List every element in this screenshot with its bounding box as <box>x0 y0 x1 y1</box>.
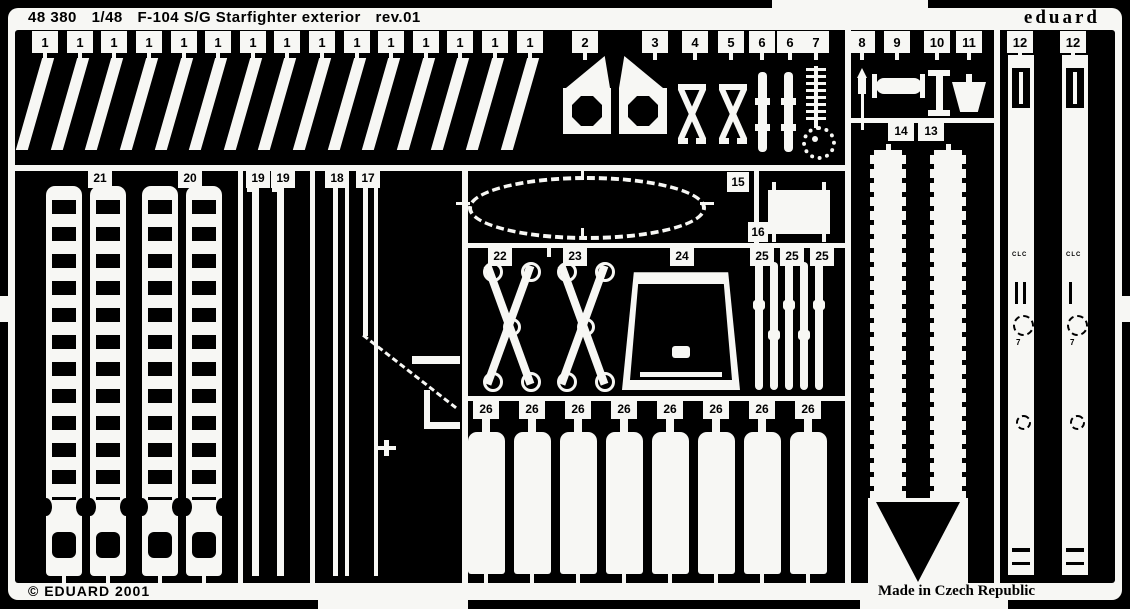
part-number-tab: 1 <box>447 31 473 53</box>
column-waist-notch <box>180 498 192 516</box>
x-brace-foot <box>719 138 729 144</box>
slat-part <box>560 432 597 574</box>
narrow-strip-part <box>277 190 284 576</box>
column-waist-notch <box>136 498 148 516</box>
oval-tick <box>581 228 584 238</box>
column-slot <box>96 532 120 558</box>
fitting-9-part <box>872 74 877 98</box>
header-title: 48 380 1/48 F-104 S/G Starfighter exteri… <box>28 9 431 29</box>
strip-12-tick <box>1066 548 1084 552</box>
strip-12-circle <box>1013 315 1034 336</box>
plate-stem <box>772 182 776 190</box>
hinge-strip-part <box>800 262 808 390</box>
octagon-hole <box>628 96 658 126</box>
part-label: 25 <box>780 246 804 266</box>
frame-divider-vertical <box>238 165 243 583</box>
strip-12-circle <box>1016 415 1031 430</box>
slat-stem <box>714 574 718 584</box>
part-label: 25 <box>810 246 834 266</box>
frame-divider-vertical <box>845 30 851 583</box>
strip-12-slot-bar <box>1073 72 1077 104</box>
curl-end <box>521 262 541 282</box>
pin-nub <box>781 124 796 131</box>
oval-tick <box>456 202 470 205</box>
tab-stem <box>860 53 864 60</box>
x-brace-foot <box>678 138 688 144</box>
canopy-frame-detail <box>672 346 690 358</box>
tab-stem <box>760 53 764 60</box>
tab-stem <box>653 53 657 60</box>
strip-12-tick <box>1066 562 1084 565</box>
part-label: 26 <box>473 399 499 419</box>
tab-stem <box>967 53 971 60</box>
column-slots <box>148 200 172 500</box>
x-brace-foot <box>696 138 706 144</box>
part-number-tab: 8 <box>849 31 875 53</box>
column-slots <box>192 200 216 500</box>
strip-serration <box>930 150 934 500</box>
plate-15-part <box>768 190 830 234</box>
pin-part <box>758 72 767 152</box>
fret-edge-tab <box>1116 296 1130 322</box>
strip-serration <box>902 150 906 500</box>
strip-12-circle <box>1070 415 1085 430</box>
curl-end <box>595 262 615 282</box>
tab-stem <box>895 53 899 60</box>
hinge-nub <box>798 330 810 340</box>
antenna-bar <box>424 422 460 429</box>
frame-stem <box>547 243 551 257</box>
part-label: 14 <box>888 121 914 141</box>
curl-center <box>577 318 595 336</box>
antenna-cross <box>384 440 389 456</box>
part-label: 26 <box>749 399 775 419</box>
column-waist-notch <box>120 498 132 516</box>
part-number-tab: 7 <box>803 31 829 53</box>
etched-mark: CLC <box>1066 252 1081 258</box>
pin-nub <box>755 98 770 105</box>
part-label: 26 <box>703 399 729 419</box>
long-strip-part <box>930 150 966 500</box>
hinge-strip-part <box>755 262 763 390</box>
slat-part <box>698 432 735 574</box>
slat-stem <box>484 574 488 584</box>
set-title: F-104 S/G Starfighter exterior <box>137 9 360 26</box>
plate-stem <box>772 234 776 242</box>
part-number-tab: 1 <box>274 31 300 53</box>
slat-stem <box>622 574 626 584</box>
strip-12-tick <box>1023 282 1026 304</box>
fret-edge-tab <box>0 296 14 322</box>
long-strip-part <box>870 150 906 500</box>
column-slot <box>52 532 76 558</box>
ring-center-dot <box>812 136 818 142</box>
strip-12-circle <box>1067 315 1088 336</box>
etched-mark: CLC <box>1012 252 1027 258</box>
slat-part <box>514 432 551 574</box>
ladder-rung <box>806 103 826 106</box>
hinge-nub <box>813 300 825 310</box>
pin-nub <box>781 98 796 105</box>
strip-12-tick <box>1012 562 1030 565</box>
strip-17-18-part <box>333 186 338 576</box>
x-brace-foot <box>737 138 747 144</box>
slat-part <box>744 432 781 574</box>
part-number-tab: 1 <box>136 31 162 53</box>
hinge-strip-part <box>785 262 793 390</box>
etched-number: 7 <box>1070 338 1074 347</box>
part-label: 20 <box>178 168 202 188</box>
part-label: 19 <box>246 168 270 188</box>
fret-edge-tab <box>772 0 928 16</box>
part-label: 23 <box>563 246 587 266</box>
part-number-tab: 1 <box>344 31 370 53</box>
curl-end <box>595 372 615 392</box>
part-number-tab: 1 <box>67 31 93 53</box>
dotted-ring-part <box>802 126 836 160</box>
canopy-frame-bar <box>640 372 722 377</box>
oval-tick <box>581 170 584 180</box>
oval-ring-part <box>468 176 706 240</box>
column-slot <box>192 532 216 558</box>
part-number-tab: 10 <box>924 31 950 53</box>
part-number-tab: 1 <box>413 31 439 53</box>
part-number-tab: 3 <box>642 31 668 53</box>
slat-part <box>652 432 689 574</box>
part-number-tab: 1 <box>205 31 231 53</box>
column-slot <box>148 532 172 558</box>
hinge-nub <box>768 330 780 340</box>
column-stem <box>202 576 206 584</box>
strip-12-tick <box>1012 548 1030 552</box>
strip-17-18-part <box>345 186 349 576</box>
column-stem <box>158 576 162 584</box>
antenna-bar <box>424 390 430 424</box>
part-label: 21 <box>88 168 112 188</box>
slat-stem <box>806 574 810 584</box>
slat-stem <box>530 574 534 584</box>
fitting-9-part <box>920 74 925 98</box>
octagon-hole <box>572 96 602 126</box>
strip-12-tick <box>1015 282 1018 304</box>
ladder-rung <box>806 89 826 92</box>
strip-stem <box>886 144 891 150</box>
ladder-rung <box>806 96 826 99</box>
strip-12-tick <box>1069 282 1072 304</box>
tab-stem <box>788 53 792 60</box>
part-number-tab: 1 <box>309 31 335 53</box>
part-number-tab: 12 <box>1060 31 1086 53</box>
column-waist-notch <box>40 498 52 516</box>
part-number-tab: 1 <box>171 31 197 53</box>
part-number-tab: 1 <box>482 31 508 53</box>
strip-12-slot-bar <box>1019 72 1023 104</box>
slat-stem <box>576 574 580 584</box>
slat-part <box>468 432 505 574</box>
part-number-tab: 12 <box>1007 31 1033 53</box>
oval-tick <box>700 202 714 205</box>
ladder-rung <box>806 82 826 85</box>
part-label: 15 <box>727 172 749 192</box>
part-number-tab: 1 <box>32 31 58 53</box>
strip-stem <box>946 144 951 150</box>
part-label: 26 <box>565 399 591 419</box>
hinge-nub <box>783 300 795 310</box>
ladder-rung <box>806 75 826 78</box>
fitting-10-part <box>928 110 950 116</box>
part-label: 22 <box>488 246 512 266</box>
tab-stem <box>693 53 697 60</box>
part-label: 18 <box>325 168 349 188</box>
part-label: 24 <box>670 246 694 266</box>
slat-stem <box>668 574 672 584</box>
plate-stem <box>822 182 826 190</box>
curl-center <box>503 318 521 336</box>
column-waist-notch <box>216 498 228 516</box>
pin-part <box>784 72 793 152</box>
narrow-strip-part <box>252 190 259 576</box>
ladder-rung <box>806 68 826 71</box>
fitting-10-part <box>936 76 943 110</box>
part-number-tab: 9 <box>884 31 910 53</box>
hinge-strip-part <box>815 262 823 390</box>
part-number-tab: 11 <box>956 31 982 53</box>
column-waist-notch <box>84 498 96 516</box>
catalog-number: 48 380 <box>28 9 77 26</box>
fitting-8-part <box>861 94 864 130</box>
part-label: 26 <box>795 399 821 419</box>
frame-divider-vertical <box>310 165 315 583</box>
brand-logo: eduard <box>1024 7 1100 29</box>
part-number-tab: 1 <box>517 31 543 53</box>
tab-stem <box>729 53 733 60</box>
slat-part <box>606 432 643 574</box>
hinge-nub <box>753 300 765 310</box>
made-in-text: Made in Czech Republic <box>878 583 1035 600</box>
antenna-bar <box>412 356 460 364</box>
revision-label: rev.01 <box>376 9 421 26</box>
tab-stem <box>583 53 587 60</box>
tab-stem <box>935 53 939 60</box>
fitting-8-part <box>858 78 866 94</box>
part-number-tab: 6 <box>749 31 775 53</box>
part-label: 13 <box>918 121 944 141</box>
part-number-tab: 5 <box>718 31 744 53</box>
strip-serration <box>870 150 874 500</box>
column-slots <box>96 200 120 500</box>
hinge-strip-part <box>770 262 778 390</box>
part-label: 19 <box>271 168 295 188</box>
copyright-text: © EDUARD 2001 <box>28 583 150 599</box>
part-number-tab: 1 <box>378 31 404 53</box>
strip-17-18-part <box>374 186 378 576</box>
part-number-tab: 2 <box>572 31 598 53</box>
canopy-frame-opening <box>630 284 732 380</box>
slat-stem <box>760 574 764 584</box>
fret-edge-tab <box>318 594 468 609</box>
part-label: 26 <box>611 399 637 419</box>
pin-nub <box>755 124 770 131</box>
part-number-tab: 1 <box>240 31 266 53</box>
etched-number: 7 <box>1016 338 1020 347</box>
photo-etch-fret-scan: 48 380 1/48 F-104 S/G Starfighter exteri… <box>0 0 1130 609</box>
strip-17-18-part <box>363 186 368 336</box>
part-number-tab: 6 <box>777 31 803 53</box>
curl-end <box>521 372 541 392</box>
part-label: 25 <box>750 246 774 266</box>
fitting-9-part <box>876 78 922 94</box>
frame-divider-horizontal <box>15 165 851 171</box>
part-number-tab: 1 <box>101 31 127 53</box>
fitting-11-part <box>966 74 972 82</box>
curl-end <box>557 372 577 392</box>
part-number-tab: 4 <box>682 31 708 53</box>
part-label: 26 <box>519 399 545 419</box>
part-label: 26 <box>657 399 683 419</box>
frame-divider-vertical <box>994 30 1000 583</box>
part-label: 17 <box>356 168 380 188</box>
slat-part <box>790 432 827 574</box>
curl-end <box>483 372 503 392</box>
ladder-rung <box>806 117 826 120</box>
strip-serration <box>962 150 966 500</box>
part-label: 16 <box>748 222 768 242</box>
tab-stem <box>814 53 818 60</box>
plate-stem <box>822 234 826 242</box>
ladder-rung <box>806 110 826 113</box>
column-slots <box>52 200 76 500</box>
scale-label: 1/48 <box>92 9 123 26</box>
